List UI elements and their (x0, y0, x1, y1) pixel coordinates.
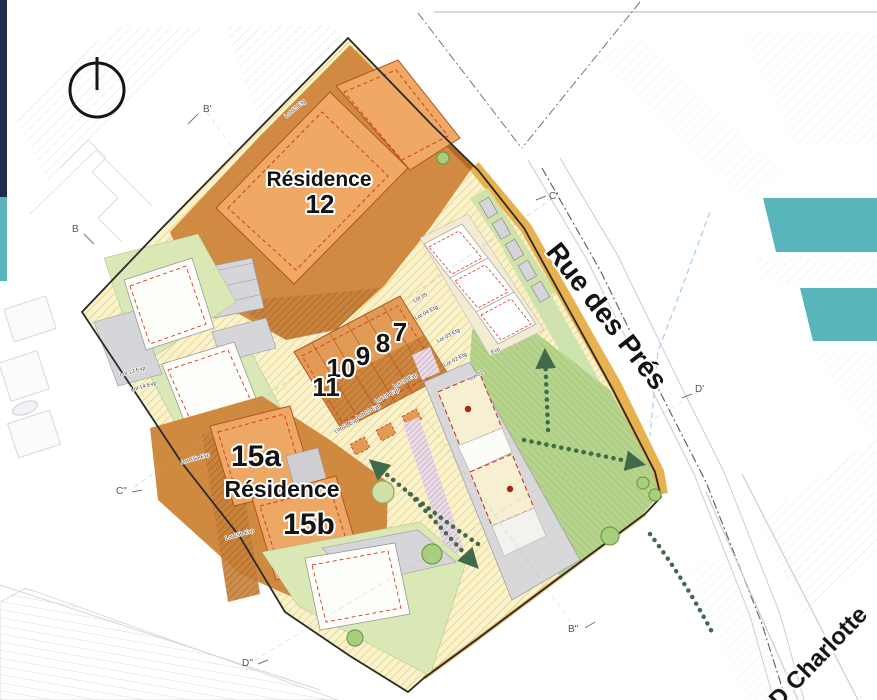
site-plan: B' B C' C'' D' D'' B'' Lot 12 Etg Lot 05… (0, 0, 877, 700)
residence-15a-label: 15a (231, 440, 281, 473)
residence-12-name: Résidence (266, 168, 371, 191)
section-marker-c-second: C'' (116, 486, 127, 497)
right-teal-band-upper (763, 198, 877, 252)
tree (372, 481, 394, 503)
section-marker-b: B (72, 224, 79, 235)
tree (637, 477, 649, 489)
unit-number-9: 9 (356, 341, 370, 371)
site-plan-page: B' B C' C'' D' D'' B'' Lot 12 Etg Lot 05… (0, 0, 877, 700)
section-marker-b-second: B'' (568, 624, 579, 635)
left-navy-strip (0, 0, 7, 197)
tree (347, 630, 363, 646)
residence-15b-label: 15b (283, 508, 335, 541)
unit-number-8: 8 (376, 328, 390, 358)
unit-number-11: 11 (312, 372, 340, 402)
section-marker-c-prime: C' (549, 191, 558, 202)
utility-line (650, 212, 710, 436)
tree (649, 489, 661, 501)
section-marker-d-prime: D' (695, 384, 704, 395)
survey-point (507, 486, 513, 492)
residence-12-number: 12 (306, 189, 335, 219)
residence-15-name: Résidence (224, 476, 339, 502)
survey-point (465, 406, 471, 412)
building-bottom (305, 543, 410, 630)
left-teal-strip (0, 197, 7, 281)
section-marker-b-prime: B' (203, 104, 212, 115)
section-marker-d-second: D'' (242, 658, 253, 669)
unit-number-7: 7 (393, 317, 407, 347)
tree (422, 544, 442, 564)
right-teal-band-lower (800, 288, 877, 341)
tree (601, 527, 619, 545)
tree (437, 152, 449, 164)
